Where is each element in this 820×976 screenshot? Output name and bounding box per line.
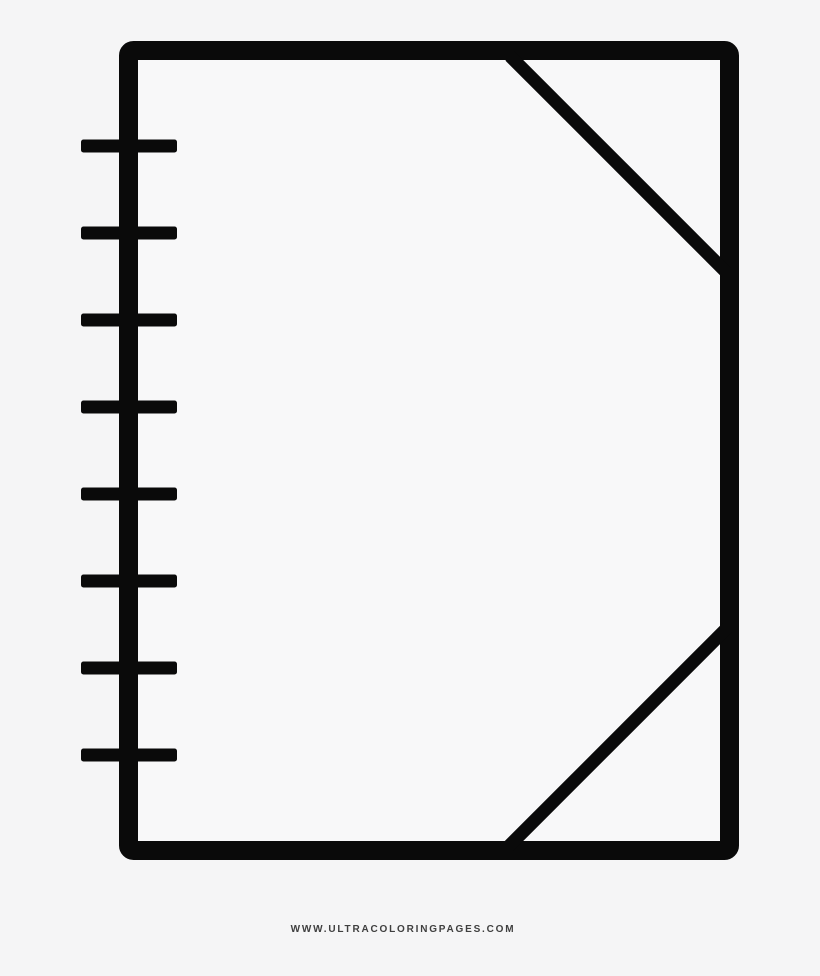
binding-ring-icon [81,662,177,675]
binding-ring-icon [81,575,177,588]
notebook-coloring-artwork [0,0,820,976]
binding-ring-icon [81,314,177,327]
notebook-line-art-icon [0,0,820,976]
binding-ring-icon [81,749,177,762]
coloring-page: WWW.ULTRACOLORINGPAGES.COM [0,0,820,976]
binding-ring-icon [81,488,177,501]
notebook-cover-outline [129,51,730,851]
watermark-text: WWW.ULTRACOLORINGPAGES.COM [0,924,806,935]
binding-ring-icon [81,140,177,153]
binding-ring-icon [81,401,177,414]
binding-ring-icon [81,227,177,240]
